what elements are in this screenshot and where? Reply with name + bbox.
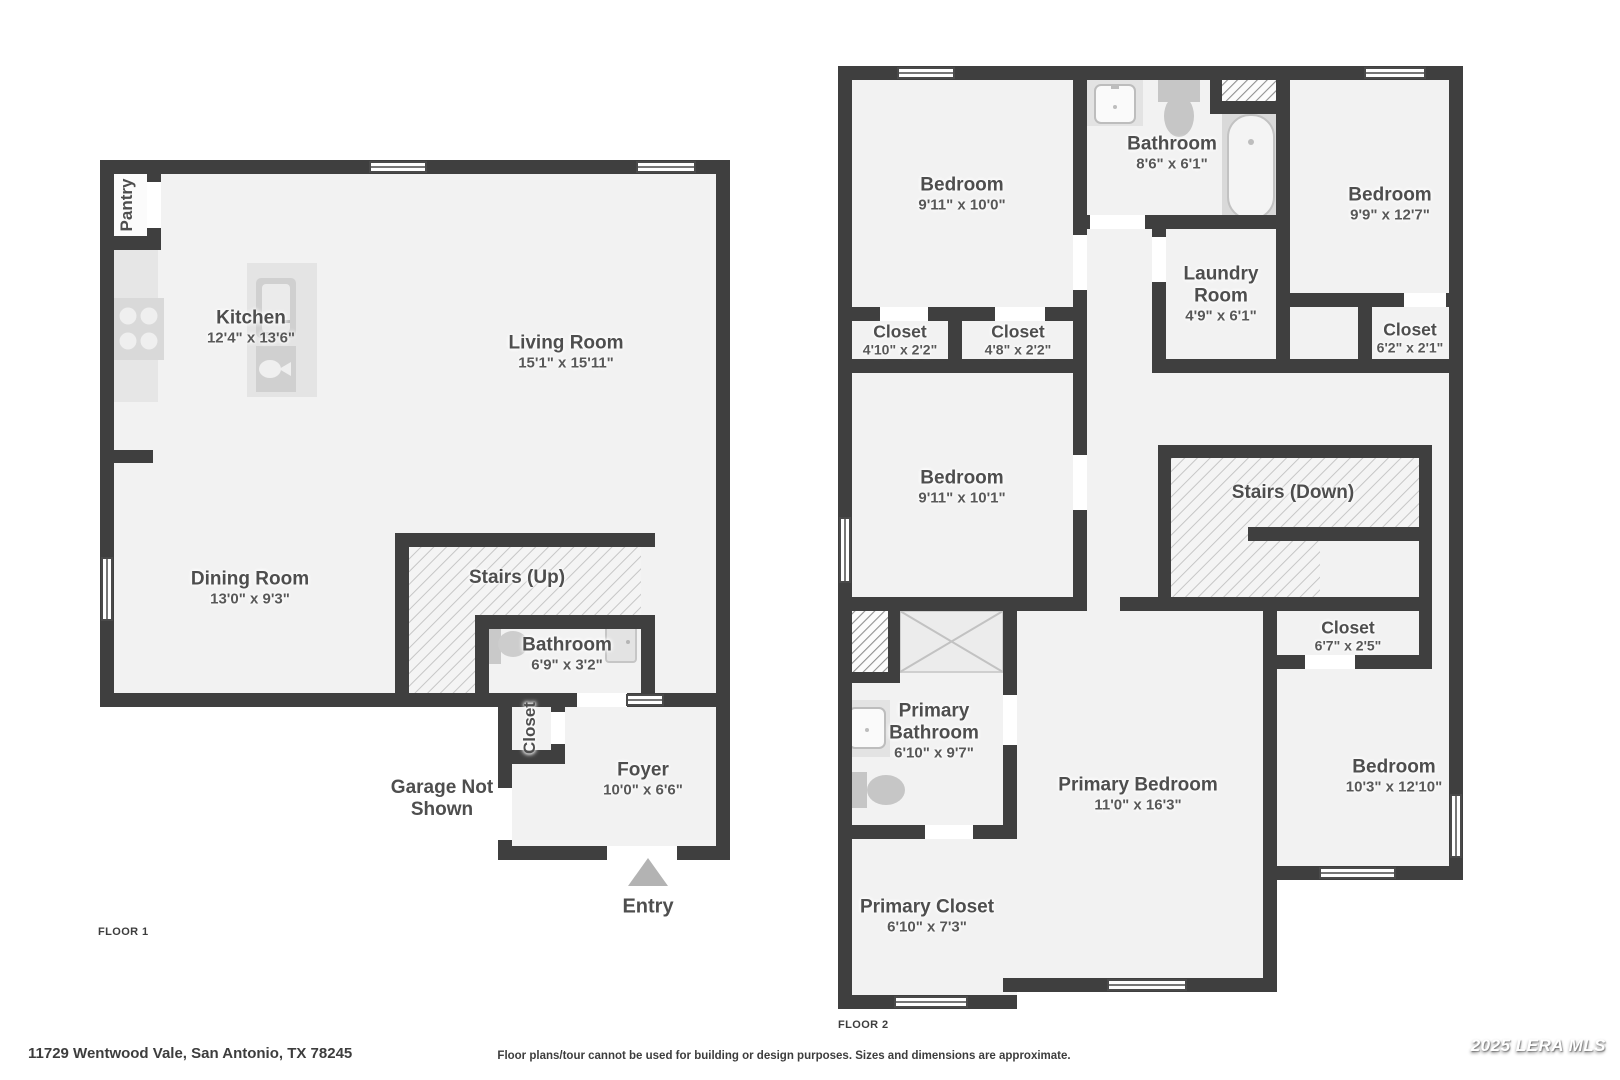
room-dims: 6'9" x 3'2" (522, 656, 612, 673)
room-label-bedroom-top-left: Bedroom 9'11" x 10'0" (918, 174, 1005, 213)
room-label-pantry: Pantry (117, 179, 137, 232)
room-name: Bathroom (522, 634, 612, 656)
room-name: Primary Closet (860, 896, 994, 918)
room-name-line2: Room (1184, 285, 1259, 307)
room-name-line1: Primary (889, 700, 979, 722)
room-name: Bathroom (1127, 133, 1217, 155)
room-label-bedroom-bottom-right: Bedroom 10'3" x 12'10" (1346, 756, 1442, 795)
room-dims: 10'3" x 12'10" (1346, 778, 1442, 795)
room-label-closet-a: Closet 4'10" x 2'2" (863, 322, 937, 359)
room-name: Living Room (508, 332, 623, 354)
room-label-kitchen: Kitchen 12'4" x 13'6" (207, 307, 295, 346)
garage-note: Garage Not Shown (391, 777, 493, 821)
room-name: Closet (863, 322, 937, 342)
room-label-bedroom-middle: Bedroom 9'11" x 10'1" (918, 467, 1005, 506)
room-name: Closet (985, 322, 1052, 342)
mls-watermark: 2025 LERA MLS (1471, 1036, 1606, 1056)
floor1-tag: FLOOR 1 (98, 926, 148, 938)
room-label-closet-f1: Closet (520, 702, 540, 754)
room-dims: 9'11" x 10'0" (918, 196, 1005, 213)
room-dims: 6'10" x 9'7" (889, 744, 979, 761)
room-dims: 6'2" x 2'1" (1377, 340, 1444, 356)
entry-label: Entry (622, 895, 673, 918)
room-name: Dining Room (191, 568, 309, 590)
room-name: Bedroom (918, 174, 1005, 196)
room-name: Closet (1377, 320, 1444, 340)
room-label-stairs-down: Stairs (Down) (1232, 482, 1354, 504)
room-dims: 6'7" x 2'5" (1315, 638, 1382, 654)
room-name: Pantry (117, 179, 137, 232)
garage-note-line2: Shown (391, 799, 493, 821)
room-dims: 9'9" x 12'7" (1348, 206, 1431, 223)
room-label-closet-b: Closet 4'8" x 2'2" (985, 322, 1052, 359)
room-dims: 8'6" x 6'1" (1127, 155, 1217, 172)
room-name: Bedroom (1348, 184, 1431, 206)
room-dims: 13'0" x 9'3" (191, 590, 309, 607)
property-address: 11729 Wentwood Vale, San Antonio, TX 782… (28, 1045, 352, 1062)
room-name-line2: Bathroom (889, 722, 979, 744)
room-label-living-room: Living Room 15'1" x 15'11" (508, 332, 623, 371)
room-name: Bedroom (918, 467, 1005, 489)
room-name-line1: Laundry (1184, 263, 1259, 285)
room-dims: 9'11" x 10'1" (918, 489, 1005, 506)
room-name: Stairs (Up) (469, 567, 565, 589)
room-dims: 4'10" x 2'2" (863, 342, 937, 358)
room-label-primary-bedroom: Primary Bedroom 11'0" x 16'3" (1058, 774, 1217, 813)
room-dims: 11'0" x 16'3" (1058, 796, 1217, 813)
room-name: Foyer (603, 759, 683, 781)
room-name: Stairs (Down) (1232, 482, 1354, 504)
room-dims: 12'4" x 13'6" (207, 329, 295, 346)
room-label-foyer: Foyer 10'0" x 6'6" (603, 759, 683, 798)
room-dims: 4'8" x 2'2" (985, 342, 1052, 358)
room-name: Kitchen (207, 307, 295, 329)
room-label-dining-room: Dining Room 13'0" x 9'3" (191, 568, 309, 607)
room-dims: 10'0" x 6'6" (603, 781, 683, 798)
room-dims: 15'1" x 15'11" (508, 354, 623, 371)
floor2-tag: FLOOR 2 (838, 1019, 888, 1031)
room-label-laundry: Laundry Room 4'9" x 6'1" (1184, 263, 1259, 324)
garage-note-line1: Garage Not (391, 777, 493, 799)
room-dims: 6'10" x 7'3" (860, 918, 994, 935)
room-name: Bedroom (1346, 756, 1442, 778)
room-dims: 4'9" x 6'1" (1184, 307, 1259, 324)
room-label-closet-c: Closet 6'2" x 2'1" (1377, 320, 1444, 357)
floorplan-page: Pantry Kitchen 12'4" x 13'6" Living Room… (0, 0, 1620, 1080)
floorplan-drawing (0, 0, 1620, 1080)
room-label-primary-closet: Primary Closet 6'10" x 7'3" (860, 896, 994, 935)
room-label-bathroom-f2: Bathroom 8'6" x 6'1" (1127, 133, 1217, 172)
room-name: Closet (1315, 618, 1382, 638)
room-name: Closet (520, 702, 540, 754)
room-label-closet-d: Closet 6'7" x 2'5" (1315, 618, 1382, 655)
entry-text: Entry (622, 895, 673, 918)
disclaimer-text: Floor plans/tour cannot be used for buil… (497, 1050, 1070, 1062)
room-label-bathroom-f1: Bathroom 6'9" x 3'2" (522, 634, 612, 673)
room-label-stairs-up: Stairs (Up) (469, 567, 565, 589)
room-name: Primary Bedroom (1058, 774, 1217, 796)
room-label-primary-bathroom: Primary Bathroom 6'10" x 9'7" (889, 700, 979, 761)
room-label-bedroom-top-right: Bedroom 9'9" x 12'7" (1348, 184, 1431, 223)
